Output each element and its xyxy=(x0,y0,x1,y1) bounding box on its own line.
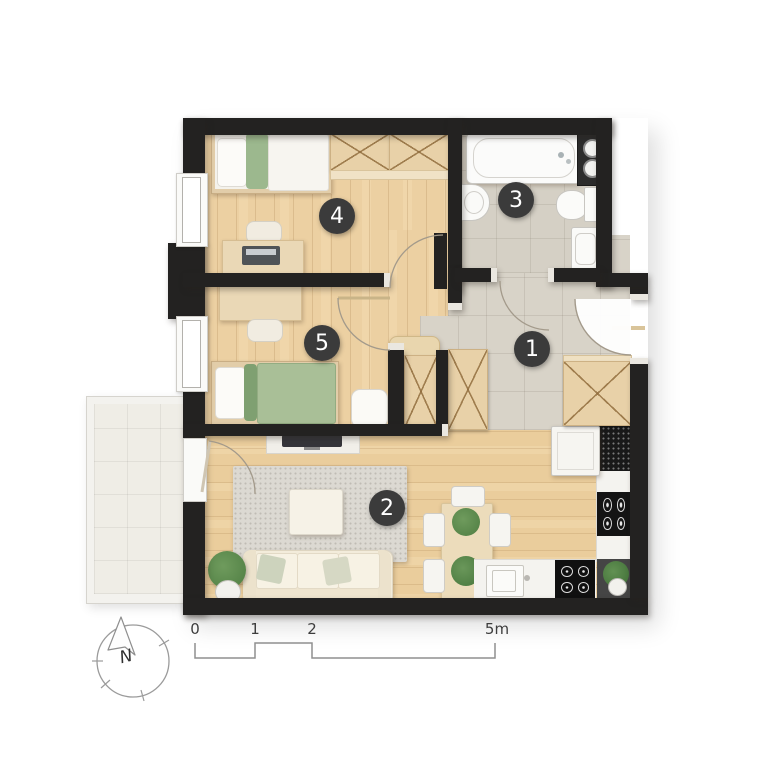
wardrobe-front-strip xyxy=(330,170,450,180)
desk-chair xyxy=(247,319,283,342)
niche-plant-pot xyxy=(608,578,627,596)
scale-label-0: 0 xyxy=(190,620,200,638)
laptop-screen xyxy=(246,249,276,255)
window-glass xyxy=(182,320,201,388)
wall-cap xyxy=(630,358,648,364)
room-badge-living-room: 2 xyxy=(369,490,405,526)
wall-cap xyxy=(388,343,404,350)
wardrobe xyxy=(330,133,390,171)
room-number: 4 xyxy=(330,204,344,229)
dining-chair xyxy=(451,486,485,507)
table-plant xyxy=(452,508,480,536)
compass-north-label: N xyxy=(118,646,135,669)
faucet xyxy=(524,575,530,581)
wardrobe xyxy=(563,361,632,426)
room-badge-bedroom5: 5 xyxy=(304,325,340,361)
wall-bedroom4-bedroom5 xyxy=(183,273,390,287)
bed-duvet xyxy=(268,134,329,191)
bathroom-sink-basin xyxy=(464,191,484,214)
bed-pillow xyxy=(215,367,246,419)
coffee-table xyxy=(289,489,343,535)
pouf xyxy=(351,389,388,428)
bathtub-faucet xyxy=(558,152,564,158)
wall-bathroom-bottom-right xyxy=(548,268,600,282)
wall-bottom xyxy=(183,598,648,615)
wall-right-lower xyxy=(630,358,648,598)
compass: N xyxy=(92,617,169,701)
dining-chair xyxy=(423,513,445,547)
wardrobe xyxy=(404,355,438,428)
bed-pillow xyxy=(217,138,247,187)
sofa-armrest xyxy=(243,550,256,603)
balcony-floor xyxy=(94,404,189,594)
wall-cap xyxy=(442,424,448,436)
window-glass xyxy=(182,177,201,243)
door-leaf-bedroom4 xyxy=(434,233,447,289)
tv xyxy=(282,435,342,447)
wall-cap xyxy=(548,268,554,282)
scale-label-2: 2 xyxy=(307,620,317,638)
scale-label-1: 1 xyxy=(250,620,260,638)
kitchen-sink-basin xyxy=(492,570,516,592)
fridge-inner xyxy=(557,432,594,470)
room-badge-bathroom: 3 xyxy=(498,182,534,218)
room-number: 1 xyxy=(525,337,539,362)
wall-bedroom5-living xyxy=(183,424,448,436)
bed-blanket-roll xyxy=(244,364,257,421)
scale-bar: 0 1 2 5m xyxy=(190,620,509,658)
scale-label-5m: 5m xyxy=(485,620,509,638)
bathtub-basin xyxy=(473,138,575,178)
room-number: 5 xyxy=(315,331,329,356)
wardrobe xyxy=(389,133,449,171)
desk xyxy=(219,281,302,321)
entry-shelf xyxy=(612,326,645,330)
cooktop-burner-symbols xyxy=(555,560,595,599)
wall-niche-left xyxy=(388,350,404,428)
wall-cap xyxy=(491,268,497,282)
wardrobe xyxy=(448,349,488,430)
wall-niche-right xyxy=(436,350,448,428)
sofa-pillow xyxy=(256,554,287,585)
bed-duvet xyxy=(257,363,336,424)
oven-burner-symbols xyxy=(597,492,631,536)
wall-cap xyxy=(384,273,390,287)
wall-cap xyxy=(448,303,462,310)
wall-cap xyxy=(630,294,648,300)
compass-needle xyxy=(108,617,135,655)
room-number: 2 xyxy=(380,496,394,521)
dining-chair xyxy=(423,559,445,593)
sofa-pillow xyxy=(322,556,352,586)
kitchen-worktop-granite xyxy=(596,426,632,471)
balcony-door-frame xyxy=(183,438,207,502)
wall-bedroom4-bathroom xyxy=(448,118,462,292)
room-badge-bedroom4: 4 xyxy=(319,198,355,234)
wall-bathroom-right xyxy=(596,118,612,287)
bed-blanket-roll xyxy=(246,133,268,189)
wall-jog-topright xyxy=(596,273,648,287)
floor-plan: 0 1 2 5m N 1 2 3 4 5 xyxy=(0,0,768,768)
room-number: 3 xyxy=(509,188,523,213)
bathtub-drain xyxy=(566,159,571,164)
dining-chair xyxy=(489,513,511,547)
tv-stand xyxy=(304,447,320,450)
small-sink-basin xyxy=(575,233,596,265)
room-badge-hallway: 1 xyxy=(514,331,550,367)
wall-top xyxy=(183,118,612,135)
